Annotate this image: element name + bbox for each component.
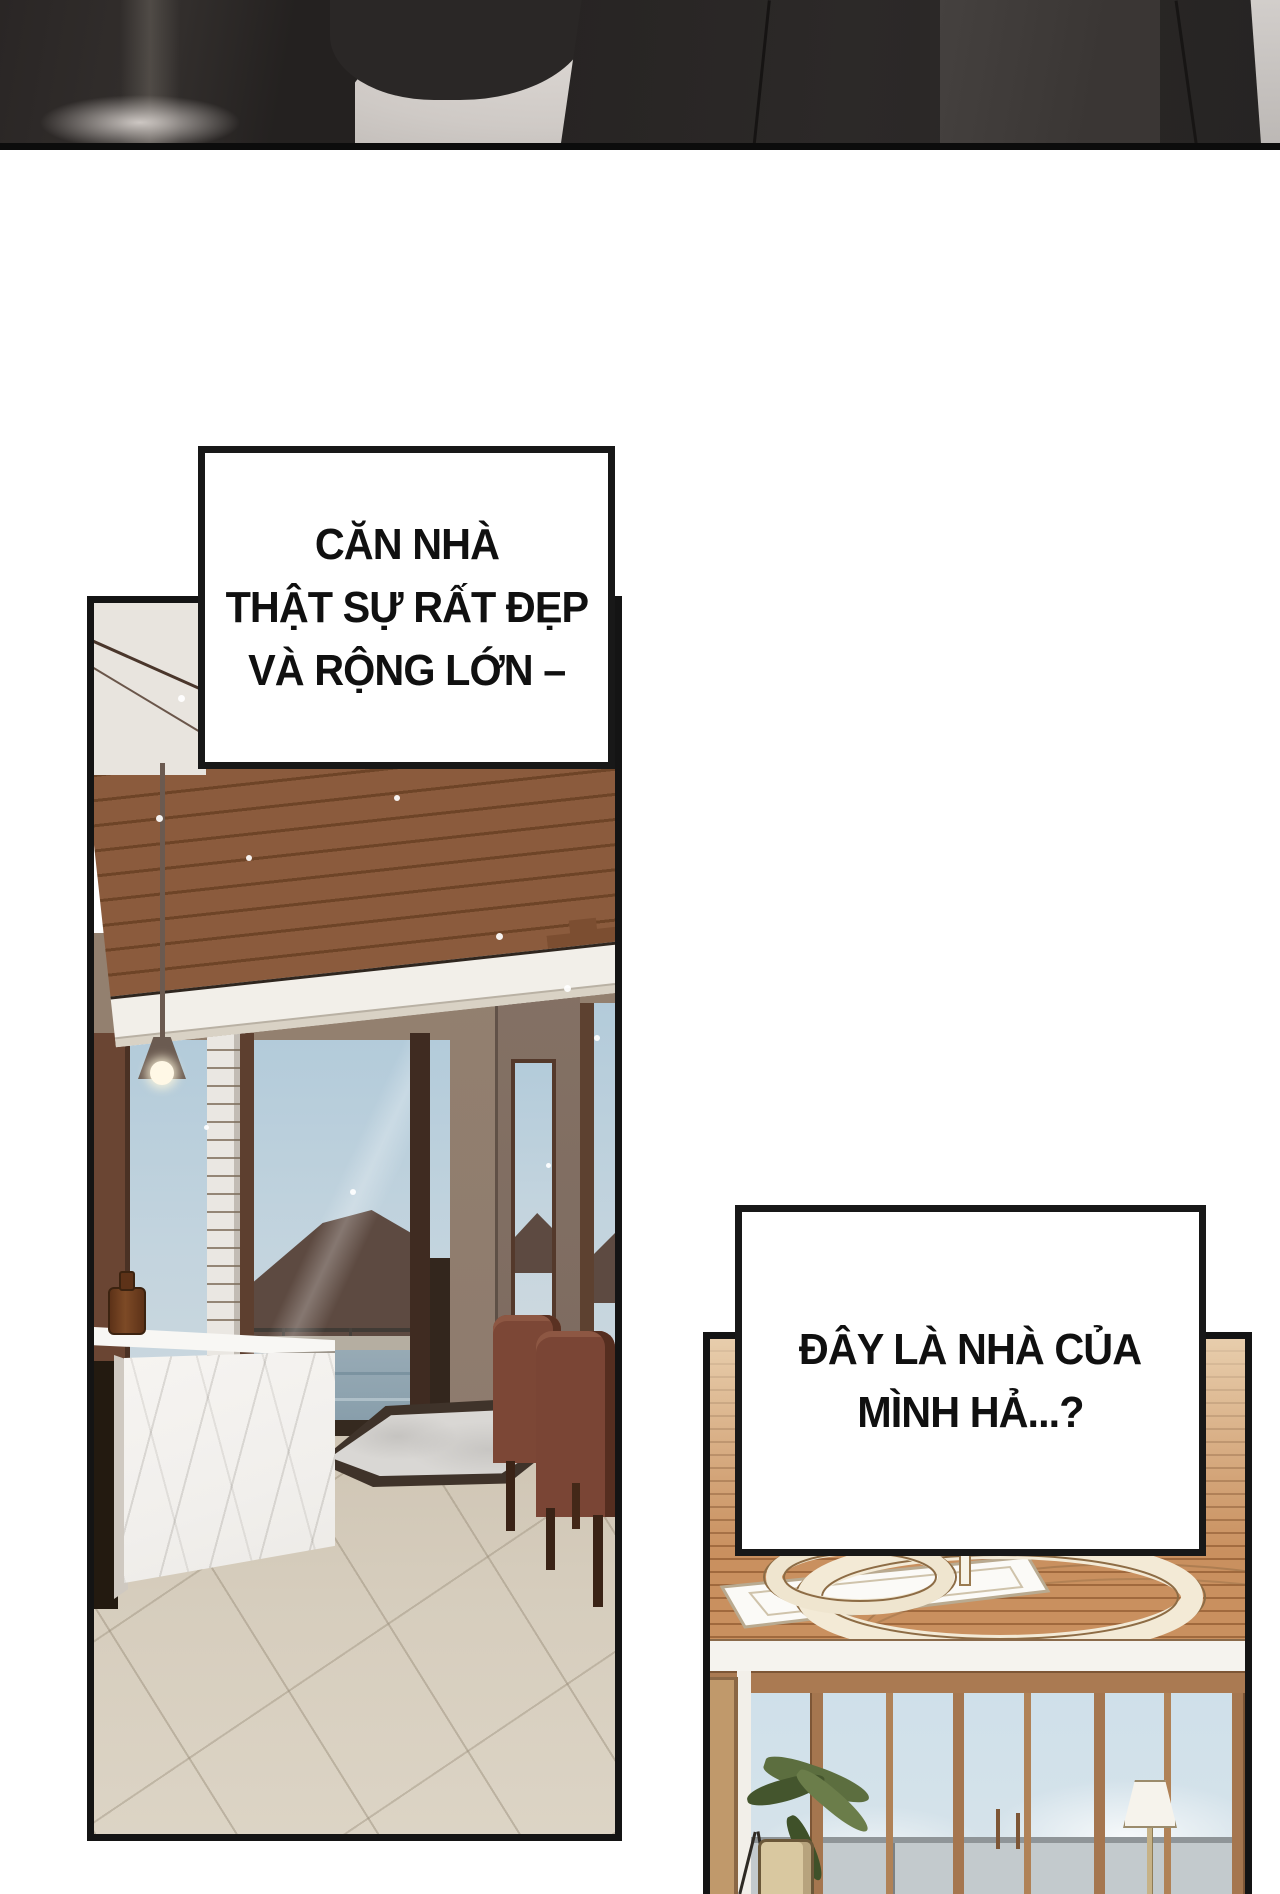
- chair-leg: [546, 1508, 555, 1570]
- window-mullion: [886, 1693, 893, 1894]
- chair-leg: [572, 1483, 580, 1529]
- hill-silhouette: [594, 1233, 615, 1303]
- caption-text-line: ĐÂY LÀ NHÀ CỦA: [799, 1318, 1141, 1381]
- caption-text-line: THẬT SỰ RẤT ĐẸP: [225, 576, 588, 639]
- door-frame-dark: [410, 1033, 430, 1425]
- window-head-frame: [710, 1671, 1245, 1695]
- caption-text-line: MÌNH HẢ...?: [857, 1381, 1083, 1444]
- amber-bottle: [108, 1287, 146, 1335]
- wardrobe: [710, 1677, 738, 1894]
- chair-leg: [506, 1461, 515, 1531]
- island-marble-front: [124, 1351, 335, 1583]
- sparkle: [546, 1163, 551, 1168]
- comic-page: CĂN NHÀ THẬT SỰ RẤT ĐẸP VÀ RỘNG LỚN –: [0, 0, 1280, 1894]
- door-handle: [1016, 1813, 1020, 1849]
- pillar-recessed-window: [515, 1063, 552, 1318]
- dark-figure-right: [560, 0, 1280, 150]
- caption-text-line: VÀ RỘNG LỚN –: [248, 639, 565, 702]
- sparkle: [156, 815, 163, 822]
- white-soffit: [710, 1639, 1245, 1673]
- window-mullion: [1232, 1693, 1245, 1894]
- pendant-bulb: [150, 1061, 174, 1085]
- amber-bottle-neck: [119, 1271, 135, 1291]
- sparkle: [496, 933, 503, 940]
- window-mullion: [1094, 1693, 1105, 1894]
- light-fabric-patch: [40, 95, 240, 150]
- sparkle: [246, 855, 252, 861]
- panel-living-room: [87, 596, 622, 1841]
- chair-leg: [593, 1515, 603, 1607]
- planter-pot: [758, 1839, 814, 1894]
- sparkle: [564, 985, 571, 992]
- caption-text-line: CĂN NHÀ: [314, 513, 498, 576]
- window-mullion: [953, 1693, 964, 1894]
- roofline-diagonal: [87, 655, 203, 734]
- sparkle: [394, 795, 400, 801]
- floor-lamp-pole: [1147, 1828, 1152, 1894]
- sparkle: [178, 695, 185, 702]
- speech-box-1: CĂN NHÀ THẬT SỰ RẤT ĐẸP VÀ RỘNG LỚN –: [198, 446, 615, 769]
- sparkle: [204, 1125, 209, 1130]
- upper-wall: [94, 603, 206, 775]
- console-silhouette: [430, 1258, 450, 1425]
- sparkle: [350, 1189, 356, 1195]
- pendant-cord: [160, 763, 165, 1041]
- top-photo-panel: [0, 0, 1280, 150]
- door-handle: [996, 1809, 1000, 1849]
- window-mullion: [1024, 1693, 1031, 1894]
- suit-panel-light: [940, 0, 1160, 150]
- sparkle: [594, 1035, 600, 1041]
- speech-box-2: ĐÂY LÀ NHÀ CỦA MÌNH HẢ...?: [735, 1205, 1206, 1556]
- hill-silhouette: [515, 1213, 552, 1273]
